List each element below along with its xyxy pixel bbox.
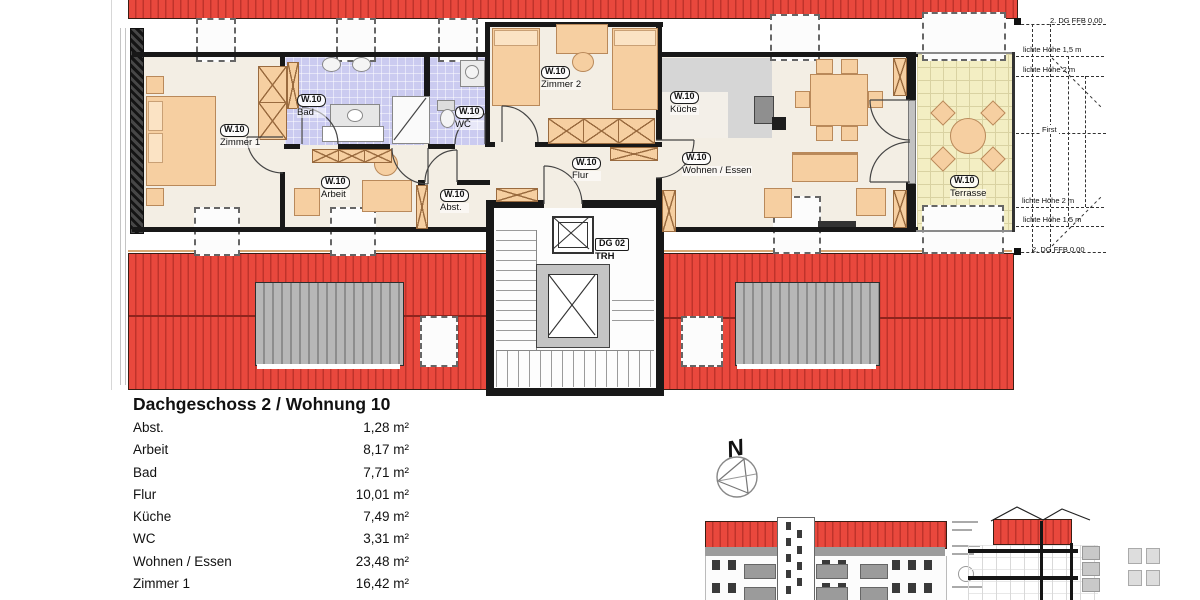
appliance-kueche: [772, 117, 786, 130]
elevator-car: [548, 274, 598, 338]
elevation-eaves: [705, 547, 945, 556]
stairs-left-flight: [496, 230, 537, 350]
roof-dormer-left: [255, 282, 404, 366]
architectural-sheet: { "title": "Dachgeschoss 2 / Wohnung 10"…: [0, 0, 1200, 600]
bed-zimmer1-pillow-1: [148, 101, 163, 131]
stairwell-wall-bottom: [486, 388, 664, 396]
stairwell-name: TRH: [595, 252, 629, 262]
table-row: Zimmer 116,42 m²: [133, 576, 409, 598]
washer-door: [465, 65, 479, 79]
desk-arbeit: [362, 180, 412, 212]
terrasse-edge-bottom: [916, 230, 1014, 232]
room-tag: W.10: [682, 152, 711, 165]
sofa: [792, 152, 858, 182]
annotation-ffb-bottom: 2. DG FFB 0,00: [1032, 245, 1085, 254]
room-cell: Küche: [133, 509, 171, 531]
toilet-bowl: [440, 109, 455, 128]
roof-band-top: [128, 0, 1018, 19]
level-line-4: [1016, 207, 1104, 208]
terrasse-door-frame: [908, 100, 916, 184]
wall-zimmer2-bottom-a: [485, 142, 495, 147]
room-label-flur: W.10 Flur: [572, 152, 601, 181]
stairwell-wall-left: [486, 200, 494, 396]
room-label-arbeit: W.10 Arbeit: [321, 171, 350, 200]
room-tag: W.10: [321, 176, 350, 189]
dining-table: [810, 74, 868, 126]
section-column-2: [1070, 543, 1073, 600]
wardrobe-zimmer2-a: [548, 118, 585, 144]
annotation-hoehe-3: lichte Höhe 2 m: [1022, 196, 1074, 205]
stairwell-wall-top-b: [582, 200, 664, 208]
section-far-window-1: [1128, 548, 1142, 564]
shelf-flur-c: [364, 149, 392, 163]
room-tag: W.10: [670, 91, 699, 104]
nightstand-1: [146, 76, 164, 94]
north-arrow: [717, 457, 757, 497]
wall-top-left: [132, 52, 485, 57]
room-tag: W.10: [440, 189, 469, 202]
room-name: Arbeit: [321, 190, 350, 200]
room-name: Bad: [297, 108, 326, 118]
roof-dormer-right-sill: [737, 364, 876, 369]
table-row: WC3,31 m²: [133, 531, 409, 553]
room-cell: Abst.: [133, 420, 164, 442]
room-label-wc: W.10 WC: [455, 101, 484, 130]
wall-terrasse-upper: [906, 52, 916, 100]
roof-skylight-right: [681, 316, 723, 367]
room-cell: Arbeit: [133, 442, 168, 464]
shelf-flur-d: [610, 147, 658, 161]
annotation-ffb-top: 2. DG FFB 0,00: [1050, 16, 1103, 25]
stairwell-tag: DG 02: [595, 238, 629, 251]
table-row: Küche7,49 m²: [133, 509, 409, 531]
annotation-hoehe-2: lichte Höhe 2 m: [1023, 65, 1075, 74]
wall-zimmer2-left: [485, 22, 490, 147]
room-tag: W.10: [455, 106, 484, 119]
sink-bad-1: [322, 57, 341, 72]
wall-terrasse-lower: [906, 182, 916, 232]
room-cell: Flur: [133, 487, 156, 509]
stairs-right-flight: [612, 300, 654, 324]
stairwell-skylight: [552, 216, 594, 254]
area-cell: 3,31 m²: [363, 531, 409, 553]
ffb-marker-top: [1014, 18, 1021, 25]
armchair-left: [764, 188, 792, 218]
dining-chair-3: [816, 126, 833, 141]
table-row: Arbeit8,17 m²: [133, 442, 409, 464]
dining-chair-4: [841, 126, 858, 141]
room-name: Küche: [670, 105, 699, 115]
room-label-bad: W.10 Bad: [297, 89, 326, 118]
shelf-flur-b: [338, 149, 366, 163]
bed-zimmer1-pillow-2: [148, 133, 163, 163]
pier-terrasse-top: [893, 58, 907, 96]
table-row: Flur10,01 m²: [133, 487, 409, 509]
elevation-tower: [777, 517, 815, 600]
room-cell: Zimmer 1: [133, 576, 190, 598]
wall-zimmer1-right-lower: [280, 172, 285, 232]
section-far-window-3: [1128, 570, 1142, 586]
shower-bad: [392, 96, 430, 144]
mini-section: [960, 500, 1200, 600]
room-label-zimmer1: W.10 Zimmer 1: [220, 119, 260, 148]
shelf-flur-e: [496, 188, 538, 202]
room-cell: Wohnen / Essen: [133, 554, 232, 576]
room-tag: W.10: [950, 175, 979, 188]
room-name: Zimmer 2: [541, 80, 581, 90]
wardrobe-zimmer1-b: [258, 102, 287, 140]
section-far-window-2: [1146, 548, 1160, 564]
section-slab-2: [968, 576, 1078, 580]
section-window-3: [1082, 578, 1100, 592]
section-column-1: [1040, 521, 1043, 600]
wardrobe-zimmer1-a: [258, 66, 287, 104]
room-tag: W.10: [541, 66, 570, 79]
room-name: Flur: [572, 171, 601, 181]
room-tag: W.10: [572, 157, 601, 170]
room-name: Abst.: [440, 203, 469, 213]
table-arbeit: [294, 188, 320, 216]
pier-terrasse-bottom: [893, 190, 907, 228]
stairs-bottom-flight: [496, 350, 654, 387]
annotation-hoehe-1: lichte Höhe 1,5 m: [1023, 45, 1081, 54]
room-label-abst: W.10 Abst.: [440, 184, 469, 213]
area-cell: 7,49 m²: [363, 509, 409, 531]
annotation-first: First: [1040, 125, 1059, 134]
section-window-1: [1082, 546, 1100, 560]
wall-wc-bottom: [428, 144, 455, 149]
roof-edge-line-1: [120, 28, 121, 385]
room-name: WC: [455, 120, 484, 130]
wall-bad-bottom-a: [284, 144, 300, 149]
stairwell-label: DG 02 TRH: [595, 233, 629, 262]
vanity-basin: [347, 109, 363, 122]
wall-exterior-left: [130, 28, 144, 234]
section-roof: [993, 519, 1072, 545]
room-label-terrasse: W.10 Terrasse: [950, 170, 986, 199]
wardrobe-zimmer2-c: [618, 118, 655, 144]
desk-zimmer2: [556, 24, 608, 54]
ffb-marker-bottom: [1014, 248, 1021, 255]
area-cell: 16,42 m²: [356, 576, 409, 598]
room-name: Zimmer 1: [220, 138, 260, 148]
roof-eave-left: [128, 250, 488, 252]
armchair-right: [856, 188, 886, 216]
dining-chair-1: [816, 59, 833, 74]
terrasse-edge-top: [916, 52, 1014, 54]
level-line-2: [1016, 56, 1104, 57]
section-window-2: [1082, 562, 1100, 576]
pier-wohnen-left: [662, 190, 676, 232]
section-slab-1: [968, 549, 1078, 553]
tv-board: [818, 221, 856, 227]
bed-zimmer2-left-pillow: [494, 30, 538, 46]
dining-chair-5: [795, 91, 810, 108]
level-line-3: [1016, 76, 1104, 77]
roof-dormer-right: [735, 282, 880, 366]
sink-bad-2: [352, 57, 371, 72]
room-tag: W.10: [220, 124, 249, 137]
dining-chair-2: [841, 59, 858, 74]
wall-abst-left-timber: [416, 185, 428, 229]
area-table: Abst.1,28 m² Arbeit8,17 m² Bad7,71 m² Fl…: [133, 420, 409, 598]
bed-zimmer2-right-pillow: [614, 30, 656, 46]
terrasse-edge-right: [1012, 52, 1015, 232]
stove-kueche: [754, 96, 774, 124]
dining-chair-6: [868, 91, 883, 108]
terrasse-table: [950, 118, 986, 154]
wall-bottom-right: [662, 227, 918, 232]
wardrobe-zimmer2-b: [583, 118, 620, 144]
roof-dormer-left-sill: [257, 364, 400, 369]
area-cell: 1,28 m²: [363, 420, 409, 442]
cabinet-bad-lower: [322, 126, 384, 142]
level-line-first: [1016, 133, 1106, 134]
roof-edge-line-2: [125, 28, 126, 385]
nightstand-2: [146, 188, 164, 206]
room-cell: WC: [133, 531, 156, 553]
roof-skylight-left: [420, 316, 458, 367]
area-cell: 23,48 m²: [356, 554, 409, 576]
page-edge-line: [111, 0, 112, 390]
room-label-zimmer2: W.10 Zimmer 2: [541, 61, 581, 90]
area-cell: 7,71 m²: [363, 465, 409, 487]
shelf-flur-a: [312, 149, 340, 163]
grid-line-4: [1085, 76, 1086, 207]
table-row: Abst.1,28 m²: [133, 420, 409, 442]
room-name: Terrasse: [950, 189, 986, 199]
table-row: Wohnen / Essen23,48 m²: [133, 554, 409, 576]
room-label-wohnen-essen: W.10 Wohnen / Essen: [682, 147, 752, 176]
level-line-5: [1016, 226, 1104, 227]
area-cell: 10,01 m²: [356, 487, 409, 509]
section-grid: [968, 545, 1098, 600]
room-name: Wohnen / Essen: [682, 166, 752, 176]
elevation-roof: [705, 521, 947, 549]
table-row: Bad7,71 m²: [133, 465, 409, 487]
sheet-title: Dachgeschoss 2 / Wohnung 10: [133, 394, 390, 415]
wall-top-right: [660, 52, 918, 57]
room-cell: Bad: [133, 465, 157, 487]
area-cell: 8,17 m²: [363, 442, 409, 464]
room-tag: W.10: [297, 94, 326, 107]
annotation-hoehe-4: lichte Höhe 1,5 m: [1023, 215, 1081, 224]
mini-elevation: [700, 505, 960, 600]
room-label-kueche: W.10 Küche: [670, 86, 699, 115]
wall-bottom-left: [132, 227, 488, 232]
section-far-window-4: [1146, 570, 1160, 586]
